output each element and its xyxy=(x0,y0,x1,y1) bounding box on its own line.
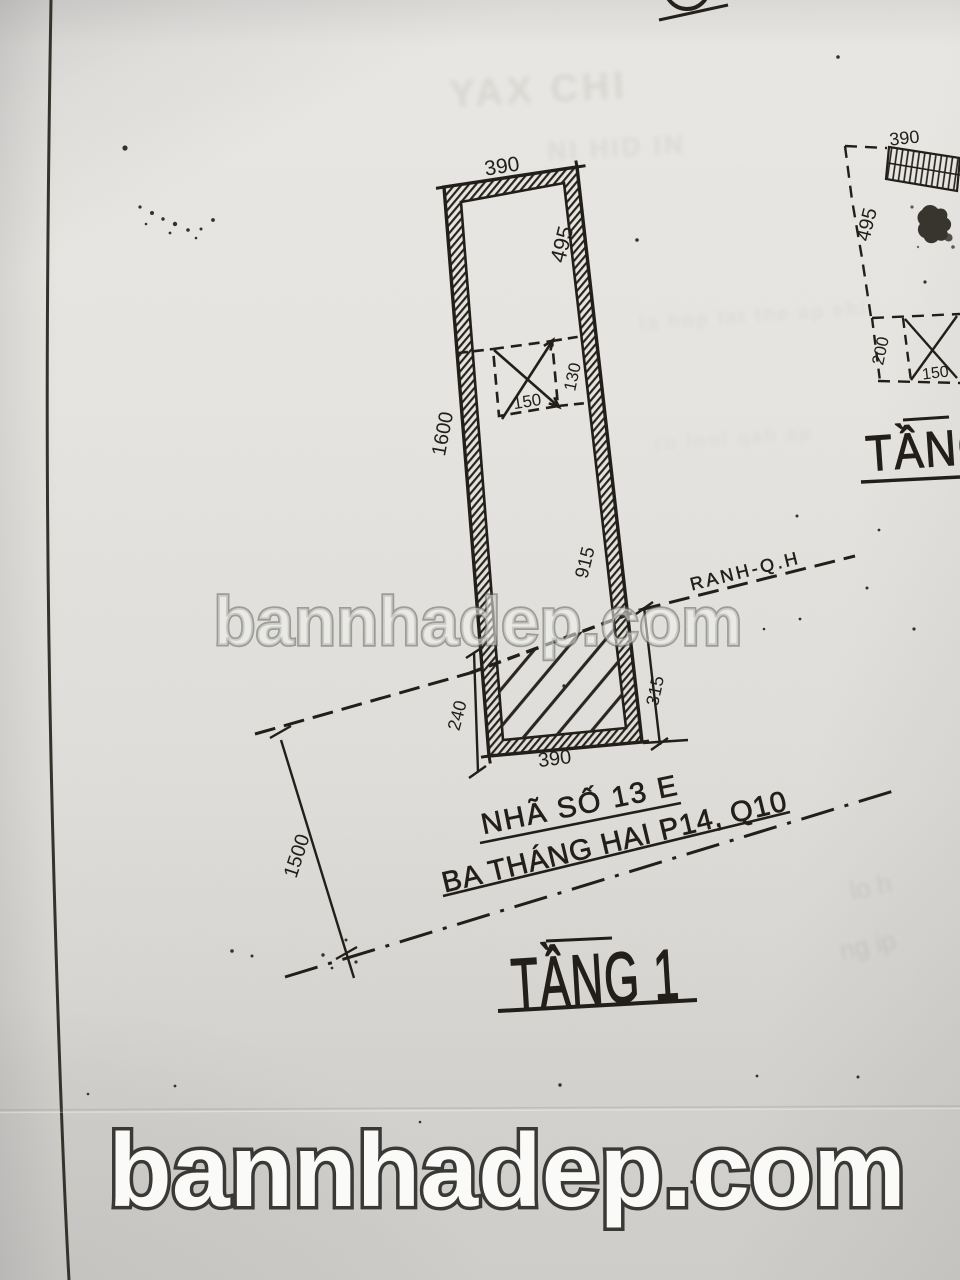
svg-text:TẦNG 1: TẦNG 1 xyxy=(509,934,682,1025)
svg-text:bannhadep.com: bannhadep.com xyxy=(108,1113,905,1229)
svg-text:bannhadep.com: bannhadep.com xyxy=(213,583,742,660)
svg-text:150: 150 xyxy=(921,363,950,383)
svg-text:390: 390 xyxy=(888,127,920,150)
svg-text:TẦNG: TẦNG xyxy=(864,417,960,481)
svg-text:390: 390 xyxy=(537,746,573,772)
